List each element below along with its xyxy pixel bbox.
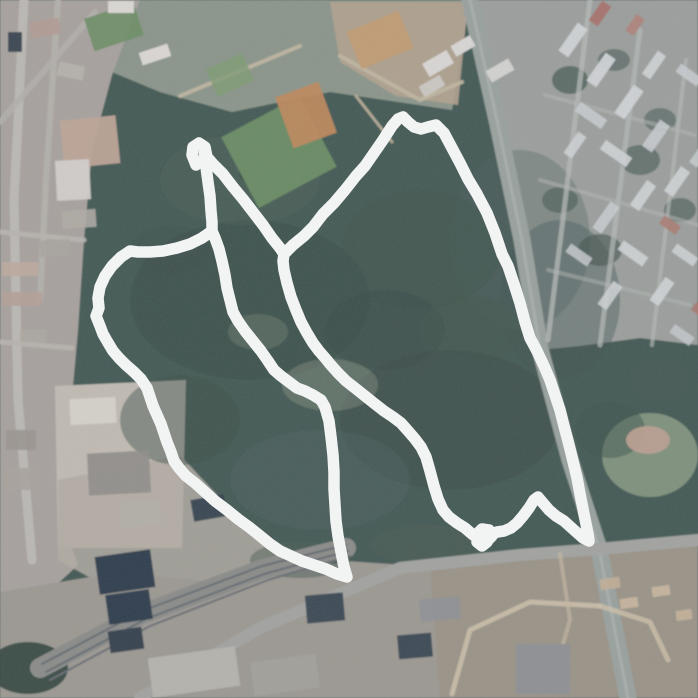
satellite-map[interactable] xyxy=(0,0,698,698)
grain-overlay xyxy=(0,0,698,698)
